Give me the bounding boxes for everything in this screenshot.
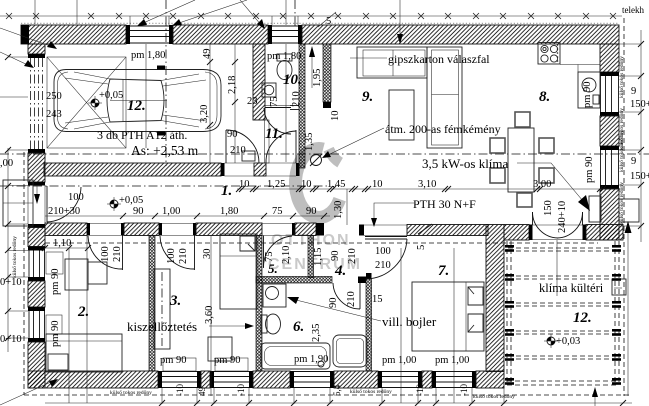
svg-text:9: 9 [631, 86, 636, 97]
svg-text:pm 90: pm 90 [50, 320, 61, 347]
svg-text:telekh: telekh [622, 5, 644, 15]
svg-text:90: 90 [133, 206, 144, 217]
svg-text:10: 10 [330, 111, 341, 122]
svg-text:5,4: 5,4 [332, 384, 342, 396]
svg-text:3,00: 3,00 [533, 179, 551, 190]
svg-text:As: +2,53 m: As: +2,53 m [131, 143, 199, 158]
svg-text:0+10: 0+10 [0, 277, 22, 288]
svg-text:4.: 4. [334, 263, 346, 279]
svg-text:kiszellőztetés: kiszellőztetés [127, 319, 197, 334]
svg-text:,00: ,00 [0, 158, 13, 169]
svg-text:11.: 11. [265, 126, 283, 142]
svg-text:-10: -10 [415, 384, 425, 396]
svg-text:pm 1,80: pm 1,80 [267, 51, 301, 62]
svg-text:pm 1,00: pm 1,00 [435, 355, 469, 366]
svg-text:pm 1,80: pm 1,80 [131, 50, 165, 61]
svg-text:210: 210 [375, 260, 391, 271]
svg-text:8.: 8. [539, 89, 550, 105]
svg-text:3,20: 3,20 [199, 105, 210, 123]
svg-text:pm 1,00: pm 1,00 [382, 355, 416, 366]
svg-text:külső tokos redőny: külső tokos redőny [12, 236, 18, 278]
svg-text:gipszkarton válaszfal: gipszkarton válaszfal [388, 52, 490, 66]
svg-text:külső tokos redőny: külső tokos redőny [619, 182, 625, 224]
svg-text:1,30: 1,30 [333, 201, 344, 219]
svg-text:150+10: 150+10 [630, 99, 649, 110]
svg-text:210+30: 210+30 [48, 206, 80, 217]
svg-text:1.: 1. [221, 183, 232, 199]
svg-text:12.: 12. [127, 98, 146, 114]
svg-text:pm 90: pm 90 [584, 156, 595, 183]
svg-text:30: 30 [202, 249, 213, 260]
svg-text:2.: 2. [77, 304, 89, 320]
svg-text:90: 90 [328, 298, 339, 309]
svg-text:3,10: 3,10 [418, 179, 436, 190]
svg-text:3,5 kW-os klíma: 3,5 kW-os klíma [422, 156, 509, 171]
svg-text:-10: -10 [236, 384, 246, 396]
svg-text:210: 210 [347, 248, 358, 264]
svg-text:75: 75 [272, 206, 283, 217]
svg-text:-10: -10 [175, 384, 185, 396]
svg-text:klíma kültéri: klíma kültéri [539, 281, 604, 295]
svg-text:7.: 7. [438, 263, 449, 279]
svg-text:külső tokos redőny: külső tokos redőny [110, 390, 152, 396]
svg-text:pm 90: pm 90 [50, 268, 61, 295]
svg-text:0+10: 0+10 [0, 334, 22, 345]
svg-text:pm 1,90: pm 1,90 [294, 354, 328, 365]
svg-text:100: 100 [166, 248, 177, 264]
svg-text:külső tokos redőny: külső tokos redőny [619, 130, 625, 172]
svg-text:49: 49 [202, 49, 213, 60]
svg-text:3 db PTH A12 áth.: 3 db PTH A12 áth. [97, 128, 187, 142]
svg-text:150: 150 [543, 200, 554, 216]
svg-text:100: 100 [375, 246, 391, 257]
svg-text:pm 90: pm 90 [214, 355, 241, 366]
svg-text:pm 90: pm 90 [160, 355, 187, 366]
svg-text:átm. 200-as fémkémény: átm. 200-as fémkémény [385, 122, 501, 136]
svg-text:10: 10 [301, 179, 312, 190]
svg-text:75: 75 [264, 252, 275, 263]
svg-text:5: 5 [416, 245, 427, 250]
svg-text:2,35: 2,35 [311, 324, 322, 342]
svg-text:10: 10 [239, 179, 250, 190]
svg-text:+0,03: +0,03 [556, 336, 580, 347]
svg-text:243: 243 [46, 109, 62, 120]
svg-text:1,35: 1,35 [304, 133, 315, 151]
svg-text:1,00: 1,00 [162, 206, 180, 217]
svg-text:1,15: 1,15 [313, 248, 324, 266]
svg-text:210: 210 [346, 291, 357, 307]
svg-text:1,95: 1,95 [312, 69, 323, 87]
svg-text:2,10: 2,10 [281, 246, 292, 264]
svg-text:90: 90 [306, 206, 317, 217]
svg-text:6.: 6. [293, 319, 304, 335]
svg-text:külső tokos redőny: külső tokos redőny [350, 389, 392, 395]
svg-text:5: 5 [326, 16, 331, 27]
svg-text:5.: 5. [268, 261, 278, 276]
svg-text:pm 90: pm 90 [582, 81, 593, 108]
svg-text:vill. bojler: vill. bojler [382, 314, 437, 329]
svg-text:3,60: 3,60 [204, 306, 215, 324]
svg-text:külső tokos redőny: külső tokos redőny [619, 56, 625, 98]
svg-text:3.: 3. [169, 293, 181, 309]
svg-text:23: 23 [247, 96, 258, 107]
svg-text:100: 100 [100, 246, 111, 262]
svg-text:PTH 30 N+F: PTH 30 N+F [413, 197, 476, 211]
svg-text:9.: 9. [362, 89, 373, 105]
svg-text:49: 49 [197, 387, 207, 397]
svg-text:210: 210 [230, 145, 246, 156]
svg-text:külső tokos redőny: külső tokos redőny [473, 394, 515, 400]
svg-text:90: 90 [227, 129, 238, 140]
svg-text:+0,05: +0,05 [99, 90, 123, 101]
svg-text:1,45: 1,45 [327, 179, 345, 190]
svg-text:+0,05: +0,05 [119, 195, 143, 206]
svg-text:10: 10 [372, 179, 383, 190]
svg-text:2,18: 2,18 [227, 76, 238, 94]
svg-text:210: 210 [112, 246, 123, 262]
svg-text:90: 90 [330, 251, 341, 262]
svg-text:9: 9 [631, 156, 636, 167]
svg-text:75: 75 [269, 97, 280, 108]
svg-text:1,25: 1,25 [267, 179, 285, 190]
svg-text:12.: 12. [573, 310, 592, 326]
svg-text:210: 210 [291, 91, 302, 107]
svg-text:100: 100 [68, 192, 84, 203]
svg-text:210: 210 [178, 248, 189, 264]
svg-text:150+10: 150+10 [630, 171, 649, 182]
svg-text:240+10: 240+10 [557, 201, 568, 233]
svg-text:-10: -10 [459, 384, 469, 396]
svg-text:1,80: 1,80 [220, 206, 238, 217]
svg-text:250: 250 [46, 91, 62, 102]
svg-text:1,10: 1,10 [53, 238, 71, 249]
svg-text:15: 15 [372, 294, 383, 305]
svg-text:10.: 10. [283, 72, 302, 88]
